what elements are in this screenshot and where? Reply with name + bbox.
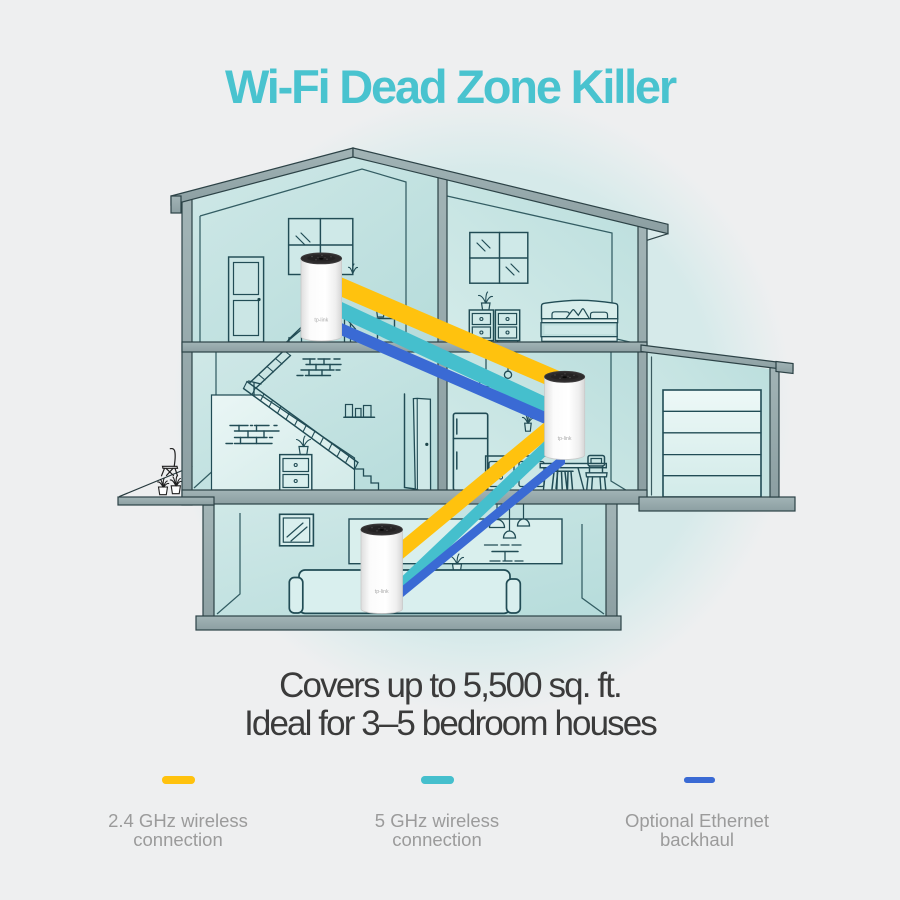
svg-text:tp-link: tp-link xyxy=(375,589,389,595)
svg-text:tp-link: tp-link xyxy=(314,318,328,324)
svg-text:tp-link: tp-link xyxy=(558,436,572,442)
